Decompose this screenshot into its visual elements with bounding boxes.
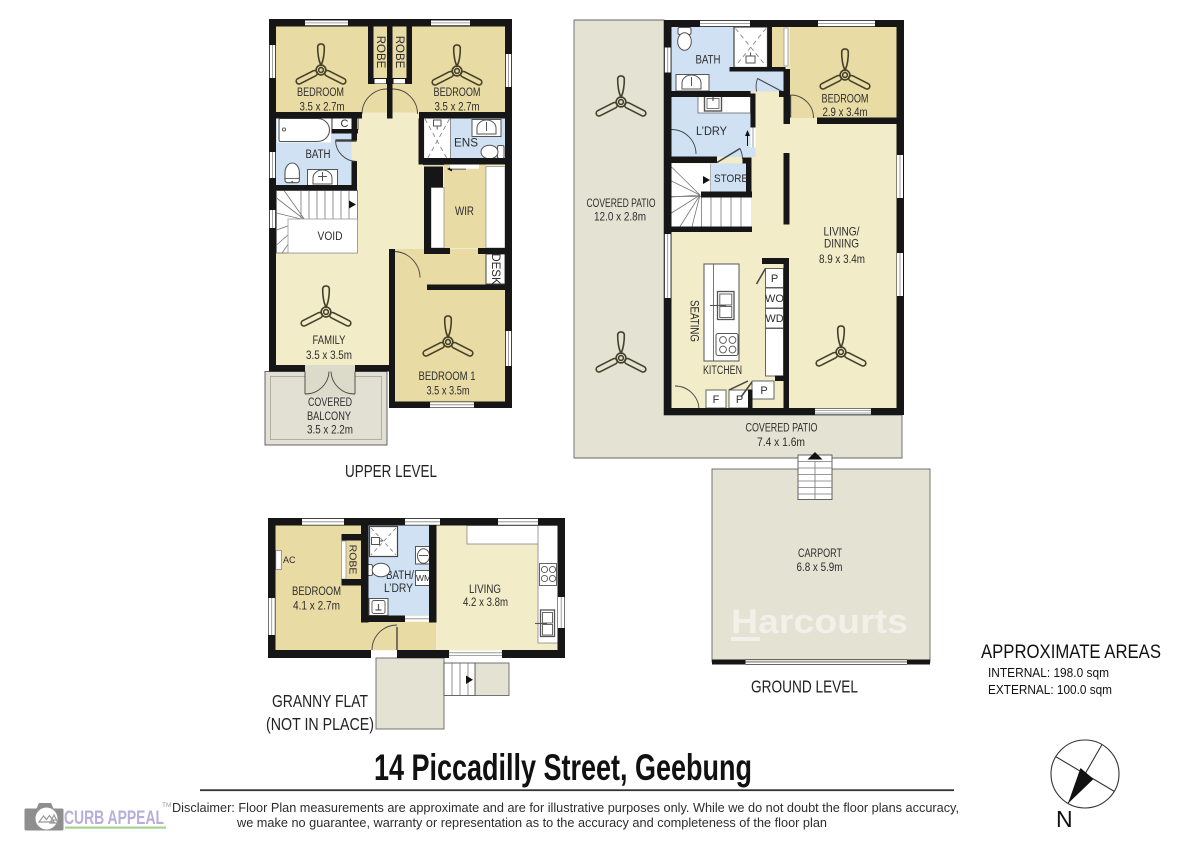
svg-text:ROBE: ROBE [393, 36, 405, 69]
svg-text:(NOT IN PLACE): (NOT IN PLACE) [266, 714, 374, 734]
svg-text:ROBE: ROBE [347, 545, 359, 575]
svg-text:GRANNY FLAT: GRANNY FLAT [272, 691, 368, 711]
svg-text:BATH: BATH [696, 53, 721, 67]
svg-text:8.9 x 3.4m: 8.9 x 3.4m [819, 252, 865, 266]
svg-text:N: N [1056, 806, 1073, 832]
svg-text:STORE: STORE [714, 173, 748, 185]
svg-text:P: P [771, 273, 778, 285]
svg-text:ENS: ENS [454, 136, 478, 150]
svg-text:we make no guarantee, warranty: we make no guarantee, warranty or repres… [236, 815, 827, 830]
svg-text:WIR: WIR [455, 204, 474, 218]
svg-text:C: C [341, 118, 349, 130]
svg-text:14 Piccadilly Street, Geebung: 14 Piccadilly Street, Geebung [374, 747, 752, 788]
svg-text:4.2 x 3.8m: 4.2 x 3.8m [463, 595, 508, 609]
svg-text:3.5 x 3.5m: 3.5 x 3.5m [427, 384, 470, 398]
svg-text:COVERED PATIO: COVERED PATIO [746, 421, 818, 435]
svg-text:L’DRY: L’DRY [384, 581, 413, 595]
svg-text:VOID: VOID [318, 229, 343, 243]
svg-text:2.9 x 3.4m: 2.9 x 3.4m [823, 105, 868, 119]
svg-text:P: P [760, 385, 767, 397]
svg-text:TM: TM [162, 802, 171, 809]
svg-text:ROBE: ROBE [374, 36, 386, 69]
svg-text:DINING: DINING [824, 237, 859, 251]
svg-text:BEDROOM: BEDROOM [434, 85, 481, 99]
svg-text:4.1 x 2.7m: 4.1 x 2.7m [293, 599, 340, 613]
svg-text:6.8 x 5.9m: 6.8 x 5.9m [797, 560, 843, 574]
svg-text:APPROXIMATE AREAS: APPROXIMATE AREAS [981, 642, 1161, 663]
svg-text:BEDROOM: BEDROOM [297, 85, 344, 99]
svg-text:KITCHEN: KITCHEN [703, 363, 742, 377]
svg-text:COVERED: COVERED [308, 395, 352, 409]
svg-text:Disclaimer: Floor Plan measure: Disclaimer: Floor Plan measurements are … [172, 800, 959, 815]
svg-text:L’DRY: L’DRY [696, 124, 727, 138]
svg-text:CURB APPEAL: CURB APPEAL [64, 807, 164, 829]
svg-text:UPPER LEVEL: UPPER LEVEL [345, 461, 437, 481]
svg-text:BEDROOM 1: BEDROOM 1 [419, 369, 476, 383]
svg-text:3.5 x 3.5m: 3.5 x 3.5m [306, 348, 352, 362]
svg-text:LIVING: LIVING [469, 582, 501, 596]
svg-text:EXTERNAL: 100.0 sqm: EXTERNAL: 100.0 sqm [988, 682, 1112, 697]
svg-text:BALCONY: BALCONY [307, 409, 351, 423]
svg-text:GROUND LEVEL: GROUND LEVEL [751, 677, 858, 697]
svg-text:BEDROOM: BEDROOM [292, 584, 341, 598]
svg-text:WD: WD [765, 313, 783, 325]
svg-text:WO: WO [765, 293, 784, 305]
svg-text:DESK: DESK [489, 253, 501, 285]
svg-text:12.0 x 2.8m: 12.0 x 2.8m [594, 210, 646, 224]
svg-text:3.5 x 2.7m: 3.5 x 2.7m [435, 100, 480, 114]
svg-text:BEDROOM: BEDROOM [822, 92, 869, 106]
svg-text:7.4 x 1.6m: 7.4 x 1.6m [757, 435, 805, 449]
svg-text:3.5 x 2.7m: 3.5 x 2.7m [300, 100, 345, 114]
svg-text:WM: WM [416, 573, 431, 583]
svg-text:BATH: BATH [306, 147, 331, 161]
svg-text:Harcourts: Harcourts [731, 603, 908, 641]
svg-text:F: F [713, 394, 720, 406]
svg-text:FAMILY: FAMILY [313, 333, 346, 347]
svg-text:COVERED PATIO: COVERED PATIO [587, 196, 656, 210]
svg-text:CARPORT: CARPORT [798, 546, 842, 560]
svg-text:AC: AC [283, 555, 296, 565]
svg-text:INTERNAL: 198.0 sqm: INTERNAL: 198.0 sqm [988, 665, 1109, 680]
svg-text:SEATING: SEATING [688, 300, 702, 342]
svg-text:3.5 x 2.2m: 3.5 x 2.2m [307, 423, 353, 437]
